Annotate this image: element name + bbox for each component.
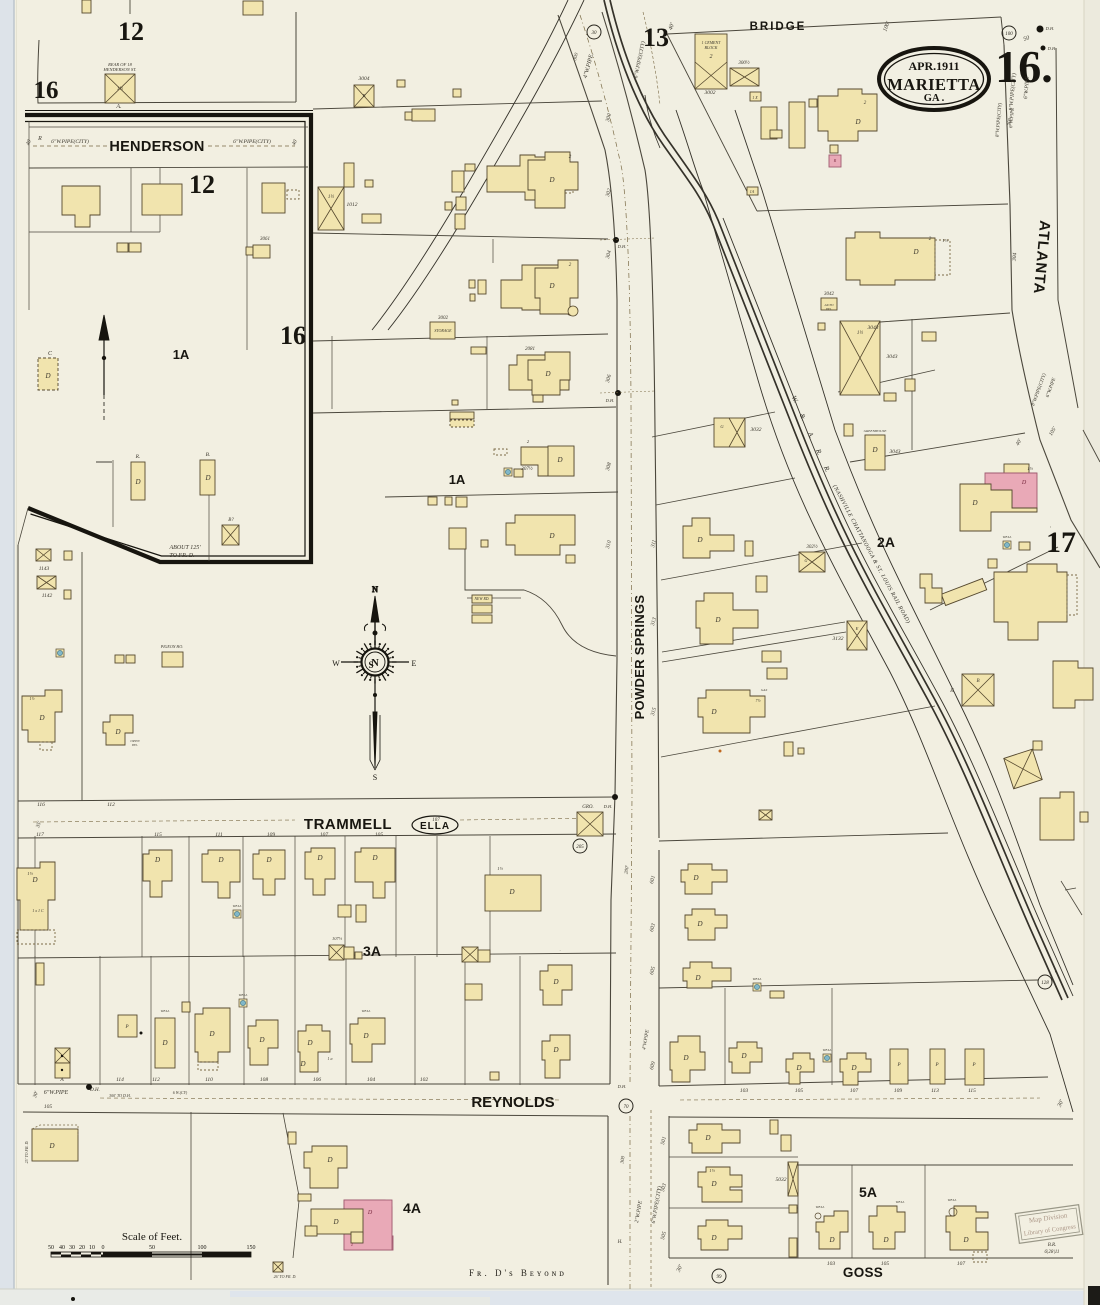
- svg-text:P: P: [971, 1063, 975, 1068]
- svg-text:1: 1: [351, 1243, 354, 1248]
- svg-text:1½: 1½: [857, 331, 864, 336]
- svg-text:D: D: [962, 1236, 968, 1244]
- svg-text:B: B: [976, 679, 979, 684]
- svg-text:107: 107: [432, 818, 440, 823]
- svg-text:1½: 1½: [30, 696, 35, 701]
- svg-text:R.: R.: [135, 454, 141, 460]
- svg-text:107: 107: [850, 1088, 859, 1094]
- svg-text:300½: 300½: [738, 61, 750, 66]
- svg-text:6"W.PIPE: 6"W.PIPE: [44, 1090, 69, 1096]
- svg-text:13: 13: [643, 23, 669, 52]
- svg-text:WELL: WELL: [753, 977, 762, 981]
- svg-text:D: D: [204, 474, 210, 482]
- svg-text:NEW RD.: NEW RD.: [474, 597, 490, 601]
- svg-text:D: D: [795, 1064, 801, 1072]
- svg-text:30: 30: [69, 1245, 75, 1251]
- svg-text:1½: 1½: [497, 866, 503, 871]
- svg-text:3004: 3004: [358, 75, 370, 82]
- svg-text:D: D: [332, 1218, 338, 1226]
- svg-text:D: D: [217, 856, 223, 864]
- svg-text:100: 100: [1005, 32, 1013, 37]
- svg-text:1A: 1A: [750, 189, 755, 194]
- svg-text:FD: FD: [559, 950, 561, 952]
- svg-text:D.H.: D.H.: [617, 1084, 627, 1089]
- svg-text:117: 117: [36, 832, 44, 838]
- svg-text:D: D: [508, 888, 514, 896]
- svg-text:S: S: [368, 660, 373, 670]
- svg-text:B.: B.: [206, 452, 211, 458]
- svg-text:115: 115: [968, 1088, 976, 1094]
- svg-text:A: A: [59, 1077, 64, 1083]
- svg-text:GREENHOUSE: GREENHOUSE: [864, 429, 888, 433]
- svg-text:Scale of Feet.: Scale of Feet.: [122, 1231, 182, 1243]
- svg-text:GAS: GAS: [761, 688, 768, 692]
- svg-text:150: 150: [247, 1245, 256, 1251]
- svg-text:1142: 1142: [42, 592, 53, 599]
- svg-text:D: D: [710, 708, 716, 716]
- svg-text:100: 100: [198, 1245, 207, 1251]
- svg-text:STORAGE: STORAGE: [434, 328, 452, 333]
- svg-text:103: 103: [740, 1088, 749, 1094]
- svg-text:D: D: [154, 856, 160, 864]
- svg-text:POWDER SPRINGS: POWDER SPRINGS: [632, 595, 647, 720]
- svg-text:0: 0: [102, 1245, 105, 1251]
- svg-text:12: 12: [118, 17, 144, 46]
- svg-text:D.H.: D.H.: [1045, 26, 1055, 31]
- svg-text:2A: 2A: [877, 534, 895, 550]
- svg-text:103: 103: [827, 1261, 836, 1267]
- svg-text:D: D: [740, 1052, 746, 1060]
- svg-text:D: D: [704, 1134, 710, 1142]
- svg-text:1½: 1½: [709, 1168, 715, 1173]
- svg-text:GRO.: GRO.: [582, 805, 594, 810]
- svg-text:110: 110: [205, 1077, 213, 1083]
- svg-text:D: D: [544, 370, 550, 378]
- svg-text:107: 107: [957, 1261, 966, 1267]
- svg-text:1 x 1 C: 1 x 1 C: [32, 908, 44, 913]
- svg-text:115: 115: [154, 832, 162, 838]
- svg-text:D: D: [371, 854, 377, 862]
- svg-text:128: 128: [1041, 981, 1049, 986]
- svg-text:B: B: [363, 93, 366, 98]
- svg-text:D: D: [48, 1142, 54, 1150]
- svg-text:D: D: [710, 1234, 716, 1242]
- svg-text:WELL: WELL: [362, 1009, 371, 1013]
- svg-text:1A: 1A: [173, 347, 190, 362]
- svg-text:D: D: [1021, 480, 1027, 486]
- svg-text:3061: 3061: [260, 237, 270, 242]
- svg-text:B.R.: B.R.: [1048, 1243, 1057, 1248]
- svg-text:WELL: WELL: [233, 904, 242, 908]
- svg-text:HENDERSON ST.: HENDERSON ST.: [103, 67, 137, 72]
- svg-text:ABOUT 125': ABOUT 125': [168, 545, 201, 551]
- svg-text:1½: 1½: [942, 238, 948, 243]
- svg-text:109: 109: [894, 1088, 903, 1094]
- svg-text:D: D: [696, 920, 702, 928]
- svg-text:D: D: [161, 1039, 167, 1047]
- svg-text:D: D: [367, 1210, 373, 1216]
- svg-text:D: D: [694, 974, 700, 982]
- svg-text:3043: 3043: [886, 353, 898, 360]
- svg-text:E: E: [855, 626, 859, 631]
- svg-text:26' TO FR. D.: 26' TO FR. D.: [274, 1274, 297, 1279]
- svg-text:MARIETTA: MARIETTA: [887, 75, 981, 94]
- svg-text:3043: 3043: [889, 448, 901, 455]
- svg-text:5032: 5032: [776, 1177, 787, 1183]
- svg-text:D: D: [971, 499, 977, 507]
- svg-text:16: 16: [280, 321, 306, 350]
- svg-text:307½: 307½: [521, 467, 533, 472]
- svg-text:D: D: [710, 1180, 716, 1188]
- svg-text:W: W: [332, 659, 340, 668]
- svg-text:105: 105: [44, 1104, 53, 1110]
- svg-text:BRIDGE: BRIDGE: [750, 21, 807, 33]
- svg-text:10: 10: [89, 1245, 95, 1251]
- svg-text:1 a: 1 a: [328, 1056, 333, 1061]
- svg-text:99: 99: [717, 1275, 723, 1280]
- svg-text:WELL: WELL: [1003, 535, 1012, 539]
- svg-text:D: D: [326, 1156, 332, 1164]
- svg-text:B?: B?: [228, 518, 234, 523]
- svg-text:WELL: WELL: [823, 1048, 832, 1052]
- svg-text:1½: 1½: [328, 195, 335, 200]
- svg-text:1A: 1A: [449, 472, 466, 487]
- svg-text:D: D: [306, 1039, 312, 1047]
- svg-text:20: 20: [79, 1245, 85, 1251]
- svg-text:D: D: [882, 1236, 888, 1244]
- svg-text:300' TO D.H.: 300' TO D.H.: [109, 1093, 131, 1098]
- svg-text:D: D: [548, 282, 554, 290]
- svg-text:WELL: WELL: [816, 1205, 825, 1209]
- svg-text:111: 111: [215, 832, 223, 838]
- svg-text:D: D: [316, 854, 322, 862]
- svg-text:D: D: [362, 1032, 368, 1040]
- svg-text:D: D: [44, 372, 50, 380]
- svg-text:105: 105: [795, 1088, 804, 1094]
- svg-text:105: 105: [881, 1261, 890, 1267]
- svg-text:5A: 5A: [859, 1184, 877, 1200]
- svg-text:112: 112: [107, 802, 115, 808]
- svg-text:D: D: [38, 714, 44, 722]
- svg-text:R: R: [833, 158, 837, 163]
- svg-text:D: D: [134, 478, 140, 486]
- svg-text:102: 102: [420, 1077, 429, 1083]
- svg-text:REYNOLDS: REYNOLDS: [471, 1094, 554, 1111]
- svg-text:TO FR. D.: TO FR. D.: [169, 553, 194, 559]
- svg-text:105: 105: [375, 832, 384, 838]
- svg-text:D.H.: D.H.: [1047, 46, 1057, 51]
- svg-text:G: G: [805, 558, 808, 563]
- svg-text:A.: A.: [115, 104, 121, 110]
- svg-text:BLOCK: BLOCK: [705, 45, 718, 50]
- svg-text:D: D: [208, 1030, 214, 1038]
- svg-text:12: 12: [189, 170, 215, 199]
- svg-text:P: P: [934, 1063, 938, 1068]
- svg-text:6 W.(CY): 6 W.(CY): [173, 1090, 188, 1095]
- svg-text:2: 2: [710, 54, 713, 60]
- svg-text:50: 50: [48, 1245, 54, 1251]
- svg-text:107: 107: [320, 832, 329, 838]
- svg-text:1½: 1½: [117, 87, 124, 92]
- svg-text:WELL: WELL: [161, 1009, 170, 1013]
- svg-text:104: 104: [367, 1076, 376, 1083]
- svg-text:H.: H.: [617, 1240, 623, 1245]
- svg-text:116: 116: [37, 802, 45, 808]
- svg-text:D: D: [548, 176, 554, 184]
- svg-text:D: D: [682, 1054, 688, 1062]
- svg-text:D: D: [556, 456, 562, 464]
- svg-text:1 X: 1 X: [752, 95, 758, 100]
- svg-text:D: D: [31, 876, 37, 884]
- svg-text:3A: 3A: [363, 943, 381, 959]
- svg-text:D: D: [552, 978, 558, 986]
- svg-text:D.H.: D.H.: [605, 398, 615, 403]
- svg-text:HENDERSON: HENDERSON: [109, 139, 204, 155]
- svg-text:3132: 3132: [832, 636, 844, 642]
- svg-text:GOSS: GOSS: [843, 1265, 883, 1280]
- svg-text:D: D: [696, 536, 702, 544]
- svg-text:D: D: [714, 616, 720, 624]
- svg-text:302½: 302½: [806, 545, 818, 550]
- svg-text:P: P: [124, 1025, 128, 1030]
- svg-text:6|28|11: 6|28|11: [1045, 1250, 1060, 1255]
- svg-text:3042: 3042: [824, 292, 835, 297]
- svg-text:16: 16: [34, 77, 59, 104]
- svg-text:114: 114: [116, 1076, 124, 1083]
- svg-text:3002: 3002: [704, 90, 716, 96]
- svg-text:H: H: [949, 689, 954, 694]
- svg-text:D: D: [265, 856, 271, 864]
- svg-text:D: D: [692, 874, 698, 882]
- svg-text:50: 50: [149, 1245, 155, 1251]
- svg-text:1½: 1½: [1027, 466, 1033, 471]
- svg-text:3002: 3002: [438, 316, 449, 321]
- svg-text:GA .: GA .: [924, 93, 945, 104]
- svg-text:D: D: [828, 1236, 834, 1244]
- svg-text:304: 304: [1011, 252, 1019, 262]
- svg-text:3032: 3032: [750, 427, 762, 433]
- svg-text:D: D: [299, 1060, 305, 1068]
- svg-text:WELL: WELL: [896, 1200, 905, 1204]
- svg-text:6"W.PIPE(CITY): 6"W.PIPE(CITY): [51, 138, 89, 145]
- svg-text:106: 106: [313, 1077, 322, 1083]
- svg-text:D.H.: D.H.: [603, 804, 613, 809]
- svg-text:D: D: [552, 1046, 558, 1054]
- svg-text:70: 70: [624, 1105, 630, 1110]
- svg-text:D: D: [912, 248, 918, 256]
- svg-text:1012: 1012: [347, 202, 358, 208]
- svg-text:S: S: [373, 773, 377, 782]
- svg-text:107½: 107½: [332, 936, 343, 941]
- svg-text:D: D: [850, 1064, 856, 1072]
- svg-text:D: D: [258, 1036, 264, 1044]
- svg-text:113: 113: [931, 1088, 939, 1094]
- svg-text:3043: 3043: [867, 324, 879, 331]
- svg-text:R: R: [37, 136, 42, 142]
- svg-text:D: D: [854, 118, 860, 126]
- svg-text:112: 112: [152, 1077, 160, 1083]
- svg-text:APR.1911: APR.1911: [909, 59, 960, 73]
- svg-text:E: E: [412, 659, 417, 668]
- svg-text:TRAMMELL: TRAMMELL: [304, 816, 392, 833]
- svg-text:PIGEON HO.: PIGEON HO.: [160, 644, 183, 649]
- svg-text:Fʀ. D's Bᴇʏᴏɴᴅ: Fʀ. D's Bᴇʏᴏɴᴅ: [469, 1268, 567, 1278]
- svg-text:205: 205: [576, 845, 584, 850]
- svg-text:108: 108: [260, 1077, 269, 1083]
- svg-text:D: D: [114, 728, 120, 736]
- svg-text:1143: 1143: [39, 565, 50, 572]
- svg-text:30: 30: [592, 31, 598, 36]
- svg-text:D.H.: D.H.: [617, 244, 627, 249]
- svg-text:D: D: [548, 532, 554, 540]
- svg-text:7½: 7½: [756, 698, 761, 703]
- svg-text:2081: 2081: [525, 347, 535, 352]
- svg-text:WELL: WELL: [948, 1198, 957, 1202]
- svg-text:40: 40: [59, 1245, 65, 1251]
- svg-text:HO.: HO.: [825, 307, 832, 311]
- svg-text:6"W.PIPE(CITY): 6"W.PIPE(CITY): [233, 138, 271, 145]
- svg-text:25' TO FR. D.: 25' TO FR. D.: [24, 1141, 29, 1164]
- svg-text:WELL: WELL: [239, 993, 248, 997]
- svg-text:109: 109: [267, 832, 276, 838]
- svg-text:N: N: [372, 585, 378, 594]
- svg-text:4A: 4A: [403, 1200, 421, 1216]
- svg-text:D: D: [871, 446, 877, 454]
- svg-text:HO.: HO.: [131, 743, 138, 747]
- svg-text:P: P: [896, 1063, 900, 1068]
